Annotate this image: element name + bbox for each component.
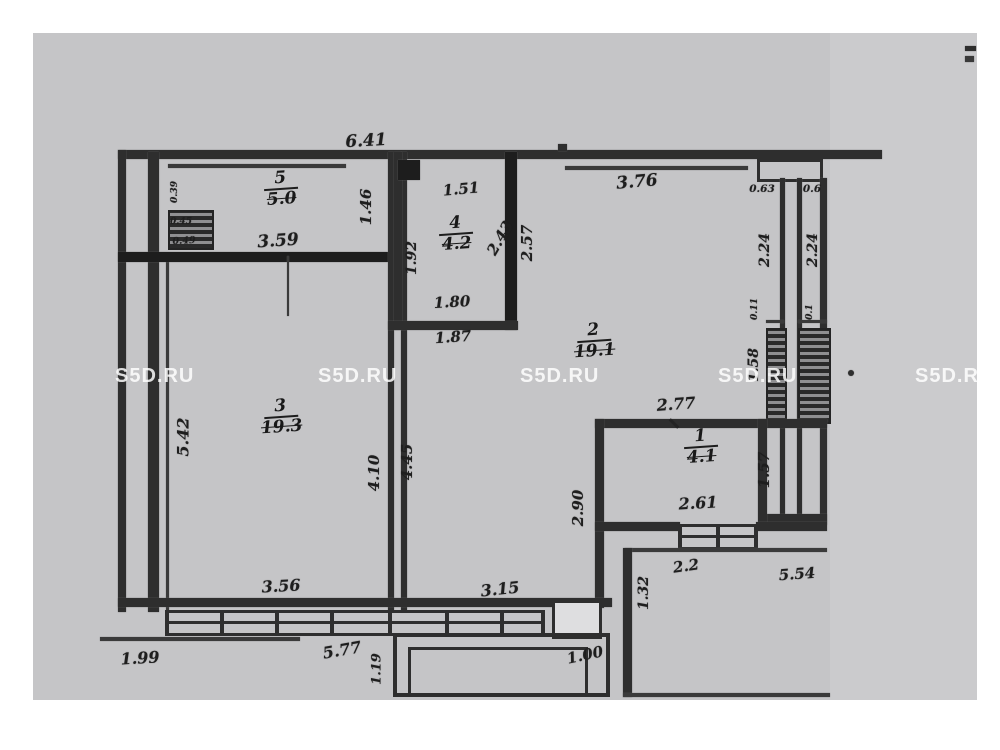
- leader-line: [287, 256, 289, 316]
- dim-label: 4.45: [398, 444, 416, 481]
- window-line: [168, 164, 346, 168]
- wall-line: [625, 548, 827, 552]
- watermark: S5D.RU: [718, 365, 797, 388]
- wall-segment: [595, 419, 604, 608]
- wall-segment: [756, 522, 827, 531]
- wall-segment: [762, 514, 827, 522]
- window-mullion: [330, 610, 334, 636]
- wall-segment: [118, 598, 612, 607]
- dim-label: 5.42: [174, 418, 193, 457]
- dim-label: 1.46: [357, 189, 375, 226]
- dim-label: 1.57: [755, 452, 773, 489]
- dim-label: 1.32: [636, 576, 652, 610]
- dim-label: 0.1: [805, 304, 815, 320]
- dim-label: 1.80: [433, 292, 470, 312]
- dim-label: 3.59: [257, 230, 300, 253]
- wall-segment: [118, 252, 388, 262]
- wall-tick: [558, 144, 567, 151]
- window-mullion: [678, 524, 682, 550]
- wall-line: [766, 320, 784, 323]
- window-mullion: [165, 610, 169, 636]
- dim-label: 1.92: [404, 241, 420, 275]
- dim-label: 5.54: [778, 564, 816, 585]
- scan-artifact: [965, 46, 976, 51]
- dim-label: 0.6: [803, 183, 821, 195]
- window-mullion: [275, 610, 279, 636]
- vent-shaft: [398, 160, 420, 180]
- window-mullion: [220, 610, 224, 636]
- dim-label: 1.51: [442, 178, 480, 199]
- window-mullion: [388, 610, 392, 636]
- dim-label: 1.99: [120, 647, 160, 668]
- dim-label: 2.57: [518, 225, 536, 262]
- wall-line: [166, 255, 169, 612]
- dim-label: 2.77: [656, 393, 696, 415]
- dim-label: 1.19: [370, 653, 385, 685]
- watermark: S5D.RU: [318, 365, 397, 388]
- dim-label: 0.39: [170, 181, 180, 203]
- dim-label: 2.24: [757, 233, 773, 267]
- room-area: 4.2: [439, 235, 474, 255]
- dim-label: 0.11: [750, 298, 760, 320]
- floor-plan-page: 5 5.0 4 4.2 2 19.1 3 19.3 1 4.1 6.41 3.7…: [0, 0, 1000, 750]
- window-mullion: [716, 524, 720, 550]
- wall-line: [798, 320, 827, 323]
- dim-label: 2.61: [678, 492, 718, 513]
- room-label-4: 4 4.2: [438, 214, 474, 255]
- wall-niche: [757, 159, 823, 182]
- slab-edge: [100, 637, 300, 641]
- window-band: [678, 524, 758, 550]
- scan-artifact: [965, 56, 974, 62]
- room-label-5: 5 5.0: [263, 169, 299, 210]
- room-label-1: 1 4.1: [683, 427, 719, 468]
- dim-label: 6.41: [345, 130, 387, 152]
- dim-label: 2.2: [672, 555, 700, 576]
- dim-label: 0.49: [172, 235, 196, 247]
- room-area: 19.1: [573, 341, 616, 362]
- shaft-hatch: [798, 328, 831, 424]
- room-label-2: 2 19.1: [572, 321, 616, 362]
- dim-label: 0.45: [170, 217, 192, 227]
- dim-label: 4.10: [365, 455, 383, 492]
- wall-segment: [623, 548, 632, 697]
- wall-segment: [595, 522, 680, 531]
- watermark: S5D.RU: [115, 365, 194, 388]
- room-label-3: 3 19.3: [259, 397, 303, 438]
- room-area: 19.3: [260, 417, 303, 438]
- dim-label: 3.15: [480, 578, 521, 601]
- dim-label: 2.24: [805, 233, 821, 267]
- watermark: S5D.RU: [520, 365, 599, 388]
- dim-label: 0.63: [749, 183, 775, 195]
- window-mullion: [754, 524, 758, 550]
- dim-label: 1.87: [434, 327, 472, 348]
- balcony-middle-rail: [408, 647, 588, 697]
- dim-label: 3.76: [616, 170, 659, 194]
- room-area: 4.1: [684, 448, 719, 468]
- slab-edge: [623, 693, 830, 697]
- watermark: S5D.RU: [915, 365, 994, 388]
- room-area: 5.0: [264, 190, 299, 210]
- scan-artifact: [848, 370, 854, 376]
- dim-label: 3.56: [261, 575, 301, 596]
- dim-label: 2.90: [569, 490, 587, 527]
- wall-segment: [118, 150, 882, 159]
